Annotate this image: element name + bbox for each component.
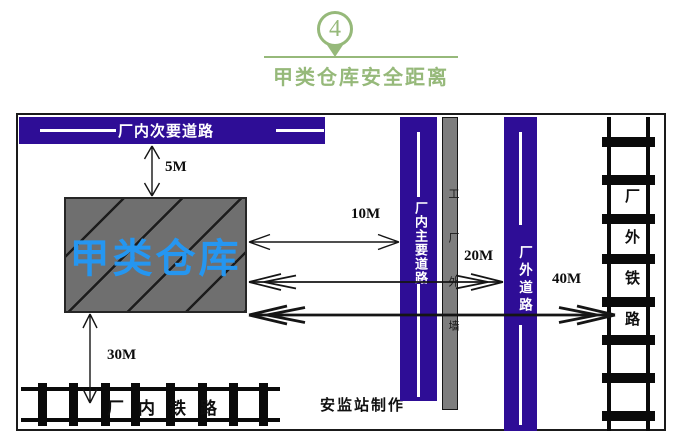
distance-label-40m: 40M (552, 271, 581, 288)
distance-label-20m: 20M (464, 248, 493, 265)
road-centerline-dash (519, 325, 522, 425)
diagram-frame: 厂内次要道路 甲类仓库 厂内铁路 安监站制作 厂内主要道路 (16, 113, 666, 431)
arrow-5m (145, 146, 160, 196)
railway-sleeper (602, 137, 655, 147)
section-badge-icon: 4 (317, 11, 353, 47)
secondary-road-label: 厂内次要道路 (118, 120, 214, 141)
secondary-road-bar: 厂内次要道路 (19, 117, 325, 144)
section-number: 4 (329, 17, 341, 41)
credit-label: 安监站制作 (320, 394, 405, 415)
railway-sleeper (69, 383, 78, 426)
road-centerline-dash (417, 284, 420, 397)
factory-wall-label: 工厂外墙 (445, 188, 461, 364)
external-railway: 厂外铁路 (602, 117, 655, 431)
external-road-bar: 厂外道路 (504, 117, 537, 431)
road-centerline-dash (276, 129, 324, 132)
road-centerline-dash (417, 132, 420, 197)
rail-line (21, 387, 280, 391)
figure: 4 甲类仓库安全距离 厂内次要道路 甲类仓库 厂内铁路 (0, 0, 691, 445)
railway-sleeper (38, 383, 47, 426)
distance-label-30m: 30M (107, 347, 136, 364)
warehouse-label: 甲类仓库 (70, 226, 242, 284)
internal-railway: 厂内铁路 (21, 383, 280, 426)
distance-label-5m: 5M (165, 159, 187, 176)
external-road-label: 厂外道路 (514, 245, 534, 315)
external-railway-label: 厂外铁路 (621, 188, 642, 352)
railway-sleeper (259, 383, 268, 426)
railway-sleeper (602, 175, 655, 185)
title-underline (264, 56, 458, 58)
main-road-bar: 厂内主要道路 (400, 117, 437, 401)
road-centerline-dash (40, 129, 116, 132)
railway-sleeper (602, 411, 655, 421)
rail-line (607, 117, 611, 431)
internal-railway-label: 厂内铁路 (107, 394, 231, 419)
main-road-label: 厂内主要道路 (411, 201, 430, 285)
rail-line (646, 117, 650, 431)
page-title: 甲类仓库安全距离 (264, 61, 458, 90)
warehouse-box: 甲类仓库 (64, 197, 247, 313)
road-centerline-dash (519, 132, 522, 225)
distance-label-10m: 10M (351, 206, 380, 223)
railway-sleeper (602, 373, 655, 383)
arrow-10m (249, 235, 399, 250)
arrow-20m (249, 274, 503, 290)
factory-wall-bar: 工厂外墙 (442, 117, 458, 410)
